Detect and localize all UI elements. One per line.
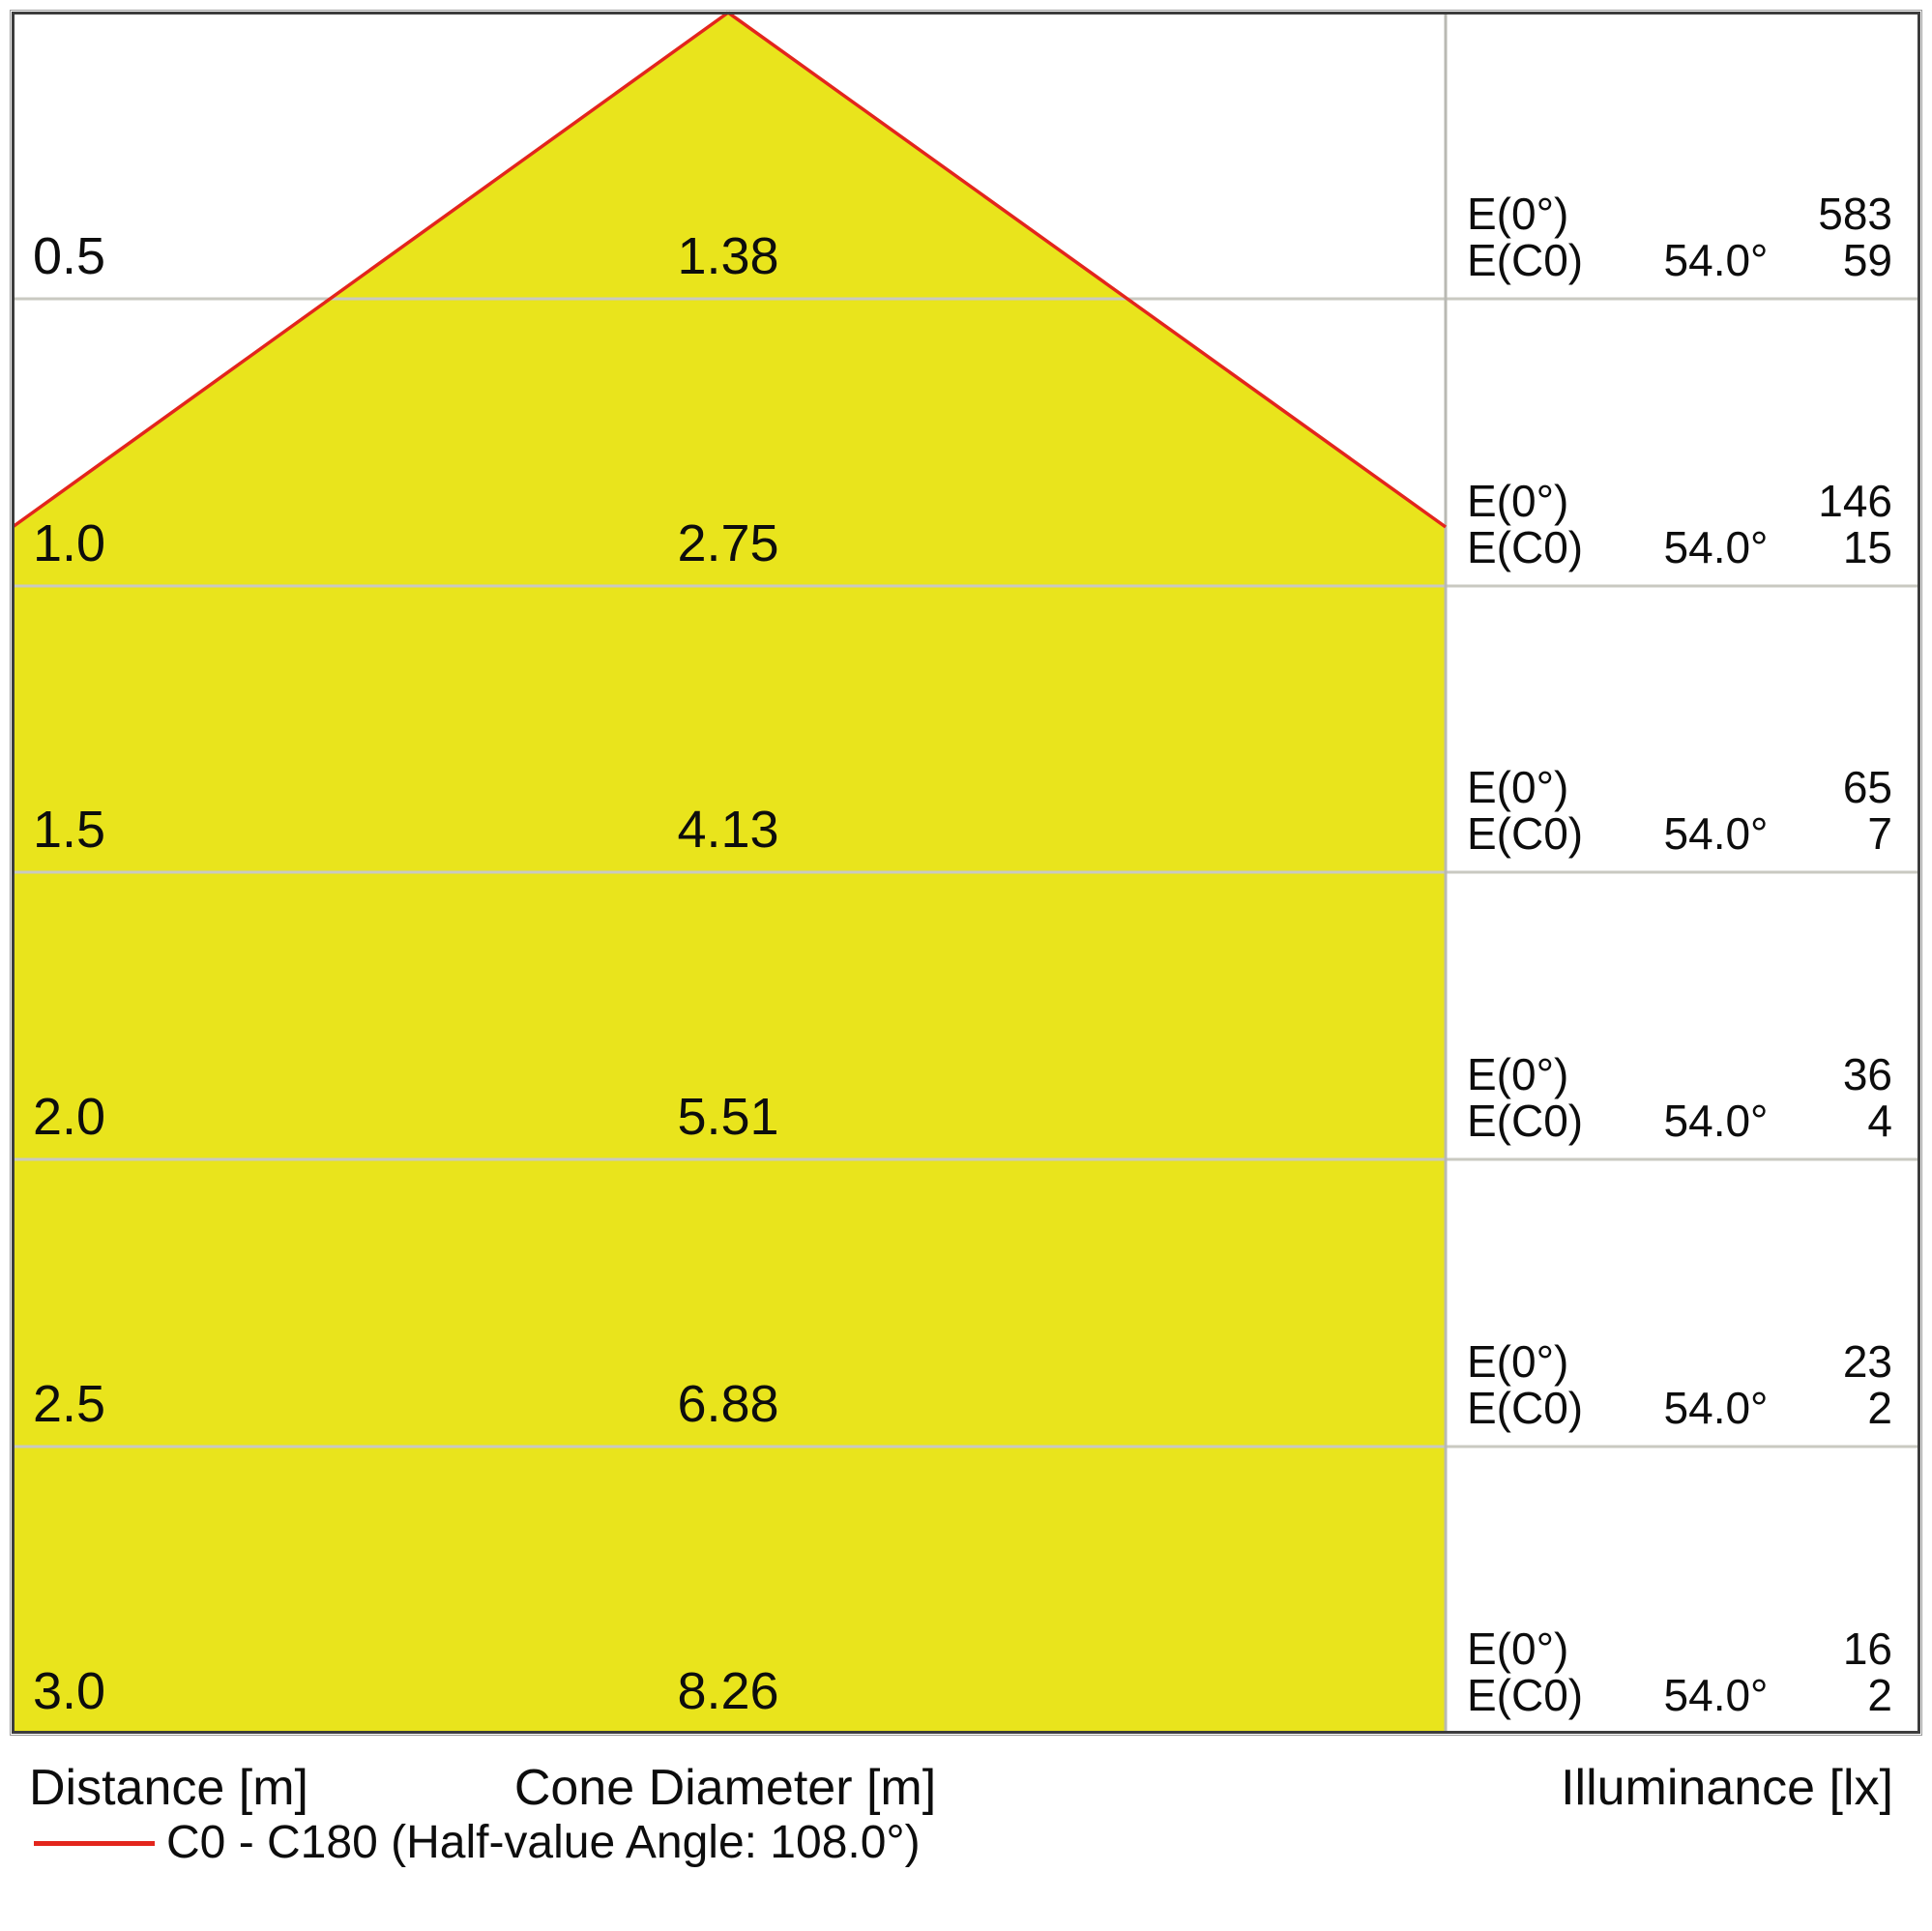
e0-row: E(0°) 583 [1467,189,1892,239]
ec0-row: E(C0) 54.0° 59 [1467,235,1892,285]
ec0-value: 7 [1796,808,1892,859]
e0-value: 65 [1796,762,1892,812]
ec0-value: 15 [1796,522,1892,572]
ec0-angle: 54.0° [1636,522,1796,572]
ec0-label: E(C0) [1467,1096,1636,1146]
distance-label: 3.0 [33,1662,105,1720]
e0-row: E(0°) 146 [1467,476,1892,526]
e0-label: E(0°) [1467,1049,1636,1099]
cone-diameter-label: 4.13 [677,801,778,859]
e0-value: 583 [1796,189,1892,239]
ec0-angle: 54.0° [1636,235,1796,285]
footer-distance-label: Distance [m] [29,1760,308,1816]
ec0-label: E(C0) [1467,1670,1636,1720]
ec0-value: 4 [1796,1096,1892,1146]
e0-value: 23 [1796,1336,1892,1387]
ec0-label: E(C0) [1467,808,1636,859]
e0-label: E(0°) [1467,1624,1636,1674]
ec0-value: 59 [1796,235,1892,285]
e0-value: 146 [1796,476,1892,526]
cone-diameter-label: 8.26 [677,1662,778,1720]
ec0-row: E(C0) 54.0° 7 [1467,808,1892,859]
ec0-angle: 54.0° [1636,1670,1796,1720]
light-cone-diagram: 0.5 1.38 E(0°) 583 E(C0) 54.0° 59 1.0 2.… [0,0,1932,1931]
footer-illuminance-label: Illuminance [lx] [1561,1760,1893,1816]
ec0-angle: 54.0° [1636,808,1796,859]
e0-row: E(0°) 23 [1467,1336,1892,1387]
ec0-row: E(C0) 54.0° 2 [1467,1670,1892,1720]
ec0-angle: 54.0° [1636,1096,1796,1146]
distance-label: 0.5 [33,227,105,285]
distance-label: 1.5 [33,801,105,859]
distance-label: 1.0 [33,514,105,572]
cone-diameter-label: 5.51 [677,1088,778,1146]
e0-label: E(0°) [1467,476,1636,526]
distance-label: 2.0 [33,1088,105,1146]
e0-label: E(0°) [1467,762,1636,812]
e0-row: E(0°) 36 [1467,1049,1892,1099]
ec0-label: E(C0) [1467,522,1636,572]
ec0-angle: 54.0° [1636,1383,1796,1433]
e0-label: E(0°) [1467,1336,1636,1387]
cone-diameter-label: 1.38 [677,227,778,285]
e0-row: E(0°) 16 [1467,1624,1892,1674]
ec0-row: E(C0) 54.0° 15 [1467,522,1892,572]
cone-diameter-label: 2.75 [677,514,778,572]
ec0-value: 2 [1796,1670,1892,1720]
ec0-row: E(C0) 54.0° 4 [1467,1096,1892,1146]
e0-value: 16 [1796,1624,1892,1674]
footer-cone-diameter-label: Cone Diameter [m] [514,1760,936,1816]
legend-line-swatch [34,1841,155,1846]
ec0-value: 2 [1796,1383,1892,1433]
legend-label: C0 - C180 (Half-value Angle: 108.0°) [166,1816,921,1870]
legend: C0 - C180 (Half-value Angle: 108.0°) [0,1816,1354,1870]
e0-label: E(0°) [1467,189,1636,239]
ec0-label: E(C0) [1467,235,1636,285]
ec0-label: E(C0) [1467,1383,1636,1433]
e0-value: 36 [1796,1049,1892,1099]
cone-diameter-label: 6.88 [677,1375,778,1433]
e0-row: E(0°) 65 [1467,762,1892,812]
distance-label: 2.5 [33,1375,105,1433]
ec0-row: E(C0) 54.0° 2 [1467,1383,1892,1433]
